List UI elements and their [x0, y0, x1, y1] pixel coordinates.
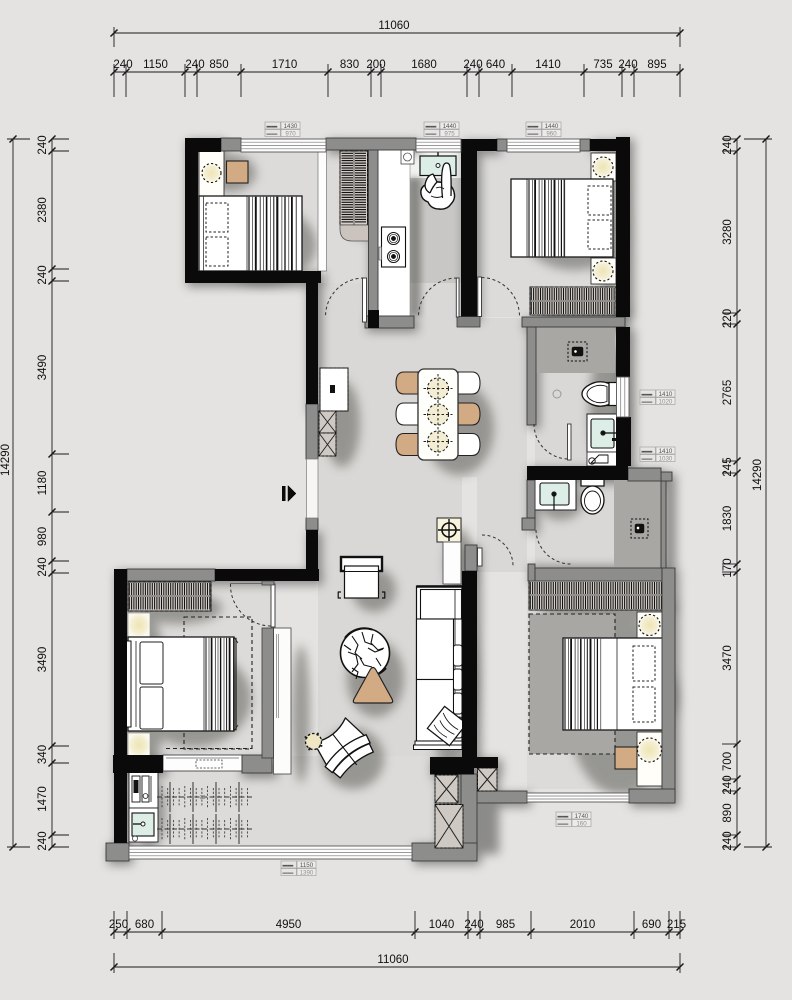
svg-text:14290: 14290 [0, 444, 12, 476]
svg-text:970: 970 [285, 130, 296, 137]
svg-text:1740: 1740 [575, 813, 589, 820]
svg-text:240: 240 [618, 59, 637, 71]
svg-text:2010: 2010 [570, 919, 596, 931]
svg-text:1410: 1410 [535, 59, 561, 71]
svg-text:▬▬: ▬▬ [426, 124, 437, 130]
svg-text:1440: 1440 [545, 123, 559, 130]
svg-text:240: 240 [37, 135, 49, 154]
svg-text:11060: 11060 [378, 20, 409, 32]
svg-text:1150: 1150 [143, 59, 168, 71]
svg-text:1180: 1180 [37, 471, 49, 496]
svg-text:▬▬: ▬▬ [426, 131, 437, 137]
svg-text:|||: ||| [199, 795, 205, 799]
svg-text:▬▬: ▬▬ [642, 456, 653, 462]
svg-text:3490: 3490 [37, 355, 49, 381]
svg-text:▬▬: ▬▬ [642, 449, 653, 455]
svg-text:960: 960 [546, 130, 557, 137]
svg-text:▬▬: ▬▬ [642, 392, 653, 398]
svg-text:1030: 1030 [659, 455, 673, 462]
svg-text:830: 830 [340, 59, 359, 71]
svg-text:160: 160 [576, 820, 587, 827]
svg-text:240: 240 [722, 775, 734, 794]
svg-text:1410: 1410 [659, 448, 673, 455]
svg-text:3490: 3490 [37, 647, 49, 673]
svg-text:▬▬: ▬▬ [283, 863, 294, 869]
svg-text:2765: 2765 [722, 380, 734, 406]
svg-text:240: 240 [185, 59, 204, 71]
svg-text:215: 215 [667, 919, 686, 931]
svg-text:640: 640 [486, 59, 505, 71]
svg-text:250: 250 [109, 919, 128, 931]
svg-text:▬▬: ▬▬ [283, 870, 294, 876]
svg-text:1470: 1470 [37, 786, 49, 812]
svg-text:▬▬: ▬▬ [267, 124, 278, 130]
svg-text:▬▬: ▬▬ [528, 131, 539, 137]
svg-text:1410: 1410 [659, 391, 673, 398]
svg-text:1390: 1390 [300, 869, 314, 876]
svg-text:240: 240 [37, 265, 49, 284]
svg-text:▬▬: ▬▬ [528, 124, 539, 130]
svg-text:240: 240 [464, 919, 483, 931]
svg-text:1430: 1430 [284, 123, 298, 130]
svg-text:220: 220 [722, 309, 734, 328]
svg-text:980: 980 [37, 527, 49, 546]
svg-text:690: 690 [642, 919, 661, 931]
svg-text:680: 680 [135, 919, 154, 931]
svg-text:▬▬: ▬▬ [267, 131, 278, 137]
svg-text:1830: 1830 [722, 506, 734, 532]
svg-text:240: 240 [463, 59, 482, 71]
svg-text:1150: 1150 [300, 862, 314, 869]
svg-text:▬▬: ▬▬ [558, 814, 569, 820]
svg-text:340: 340 [37, 745, 49, 764]
svg-text:240: 240 [37, 831, 49, 850]
svg-text:850: 850 [209, 59, 228, 71]
svg-text:2380: 2380 [37, 197, 49, 223]
svg-text:895: 895 [647, 59, 666, 71]
svg-text:1440: 1440 [443, 123, 457, 130]
svg-text:240: 240 [722, 135, 734, 154]
svg-text:200: 200 [366, 59, 385, 71]
svg-text:1020: 1020 [659, 398, 673, 405]
svg-text:1040: 1040 [429, 919, 455, 931]
svg-text:890: 890 [722, 803, 734, 822]
svg-text:170: 170 [722, 558, 734, 577]
svg-text:14290: 14290 [752, 459, 764, 491]
svg-text:700: 700 [722, 752, 734, 771]
svg-text:735: 735 [593, 59, 612, 71]
svg-text:240: 240 [113, 59, 132, 71]
svg-text:240: 240 [37, 557, 49, 576]
svg-text:3280: 3280 [722, 219, 734, 245]
svg-text:4950: 4950 [276, 919, 302, 931]
svg-text:11060: 11060 [377, 954, 408, 966]
svg-text:3470: 3470 [722, 645, 734, 671]
svg-text:245: 245 [722, 457, 734, 476]
svg-text:240: 240 [722, 831, 734, 850]
svg-text:975: 975 [444, 130, 455, 137]
svg-text:▬▬: ▬▬ [558, 821, 569, 827]
svg-text:1680: 1680 [411, 59, 437, 71]
svg-text:985: 985 [496, 919, 515, 931]
svg-text:▬▬: ▬▬ [642, 399, 653, 405]
svg-text:1710: 1710 [272, 59, 298, 71]
